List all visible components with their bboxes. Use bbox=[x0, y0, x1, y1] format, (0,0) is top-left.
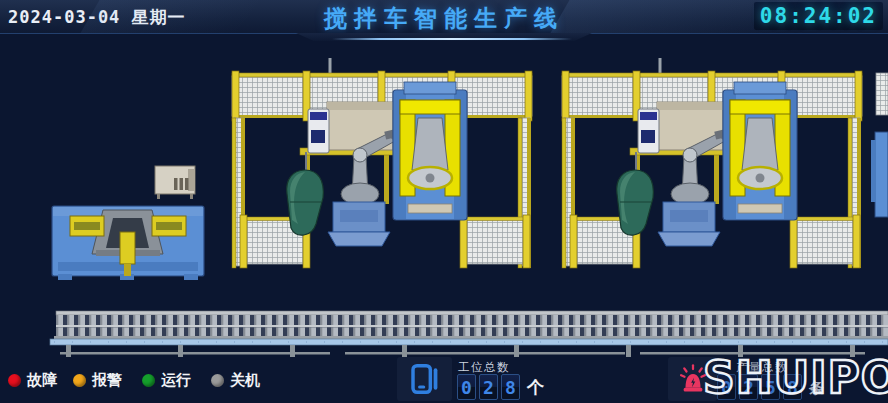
conveyor bbox=[50, 311, 888, 357]
factory-scene bbox=[0, 0, 888, 403]
legend-item-running: 运行 bbox=[142, 371, 191, 390]
robot-cell-1 bbox=[232, 58, 532, 268]
digit-box: 8 bbox=[501, 374, 520, 400]
shuipo-logo: SHUIPO bbox=[703, 355, 888, 401]
clamping-machine bbox=[52, 206, 204, 280]
hmi-screen: 2024-03-04 星期一 搅拌车智能生产线 08:24:02 bbox=[0, 0, 888, 403]
station-counter-label: 工位总数 bbox=[458, 360, 510, 375]
legend-item-alarm: 报警 bbox=[73, 371, 122, 390]
station-counter-digits: 0 2 8 个 bbox=[457, 374, 544, 400]
legend-label: 故障 bbox=[27, 371, 57, 390]
legend-item-fault: 故障 bbox=[8, 371, 57, 390]
header-bar: 2024-03-04 星期一 搅拌车智能生产线 08:24:02 bbox=[0, 0, 888, 34]
robot-cell-2 bbox=[562, 58, 862, 268]
digit-box: 0 bbox=[457, 374, 476, 400]
fault-status-dot bbox=[8, 374, 21, 387]
legend-label: 报警 bbox=[92, 371, 122, 390]
alarm-status-dot bbox=[73, 374, 86, 387]
legend-label: 运行 bbox=[161, 371, 191, 390]
clock-display: 08:24:02 bbox=[754, 2, 883, 30]
digit-box: 2 bbox=[479, 374, 498, 400]
device-tile-button[interactable] bbox=[397, 357, 452, 401]
partial-cell-right bbox=[871, 73, 888, 217]
off-status-dot bbox=[211, 374, 224, 387]
left-station bbox=[52, 166, 204, 280]
station-counter-unit: 个 bbox=[527, 376, 544, 400]
control-cabinet bbox=[155, 166, 195, 199]
legend-label: 关机 bbox=[230, 371, 260, 390]
title-underline bbox=[332, 38, 572, 40]
status-bar: 故障 报警 运行 关机 工位总数 0 2 8 个 bbox=[0, 355, 888, 403]
device-icon bbox=[409, 361, 441, 397]
running-status-dot bbox=[142, 374, 155, 387]
legend-item-off: 关机 bbox=[211, 371, 260, 390]
